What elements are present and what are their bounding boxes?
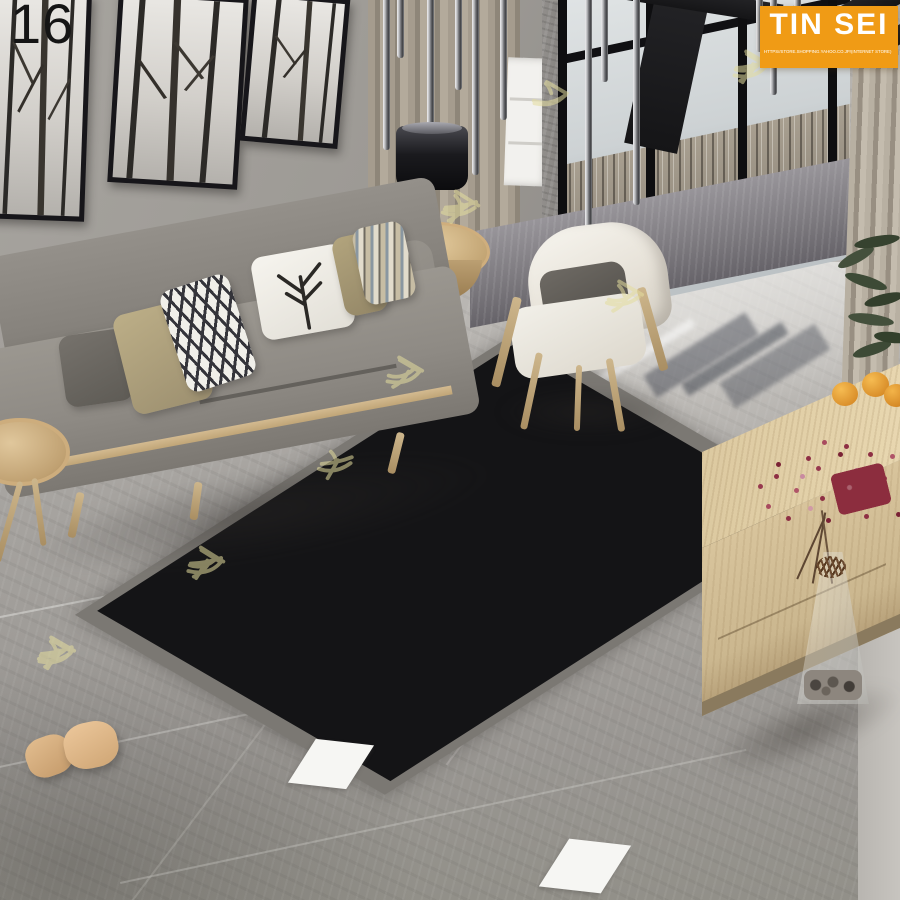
plant-leaf <box>843 269 888 293</box>
table-leg <box>31 478 46 546</box>
lamp-shade-rim <box>402 122 462 134</box>
sofa-leg <box>387 432 405 475</box>
dried-flower-spray <box>736 420 900 580</box>
wall-art-frame-3 <box>240 0 351 149</box>
corner-label: 16 <box>10 0 74 52</box>
vase-twine-knot <box>816 556 846 578</box>
pendant-tube <box>397 0 404 58</box>
store-badge-title: TIN SEI <box>760 8 898 42</box>
round-side-table <box>0 418 90 578</box>
decor-box-maroon <box>830 462 893 516</box>
pendant-tube <box>601 0 608 82</box>
vase-pebbles <box>804 670 862 700</box>
tray-top <box>0 418 70 486</box>
flower-dots <box>820 496 825 501</box>
plant-leaf <box>853 232 900 251</box>
pendant-tube <box>500 0 507 120</box>
potted-plant <box>836 232 900 342</box>
armchair-leg <box>606 358 626 432</box>
forest-print <box>113 0 244 184</box>
sofa-leg <box>189 482 202 521</box>
forest-print <box>245 0 345 144</box>
table-leg <box>0 481 23 563</box>
plant-leaf <box>863 289 900 309</box>
store-badge-subtitle: HTTPS//STORE.SHOPPING.YAHOO.CO.JP/(INTER… <box>764 50 900 54</box>
fruit-orange <box>832 382 858 406</box>
pendant-tube <box>633 0 640 205</box>
pendant-tube <box>455 0 462 90</box>
plant-leaf <box>847 311 894 328</box>
store-badge: TIN SEI HTTPS//STORE.SHOPPING.YAHOO.CO.J… <box>760 6 898 68</box>
armchair-leg <box>574 365 582 431</box>
white-armchair <box>495 218 685 438</box>
wall-art-frame-2 <box>107 0 248 190</box>
product-photo: 16 TIN SEI HTTPS//STORE.SHOPPING.YAHOO.C… <box>0 0 900 900</box>
